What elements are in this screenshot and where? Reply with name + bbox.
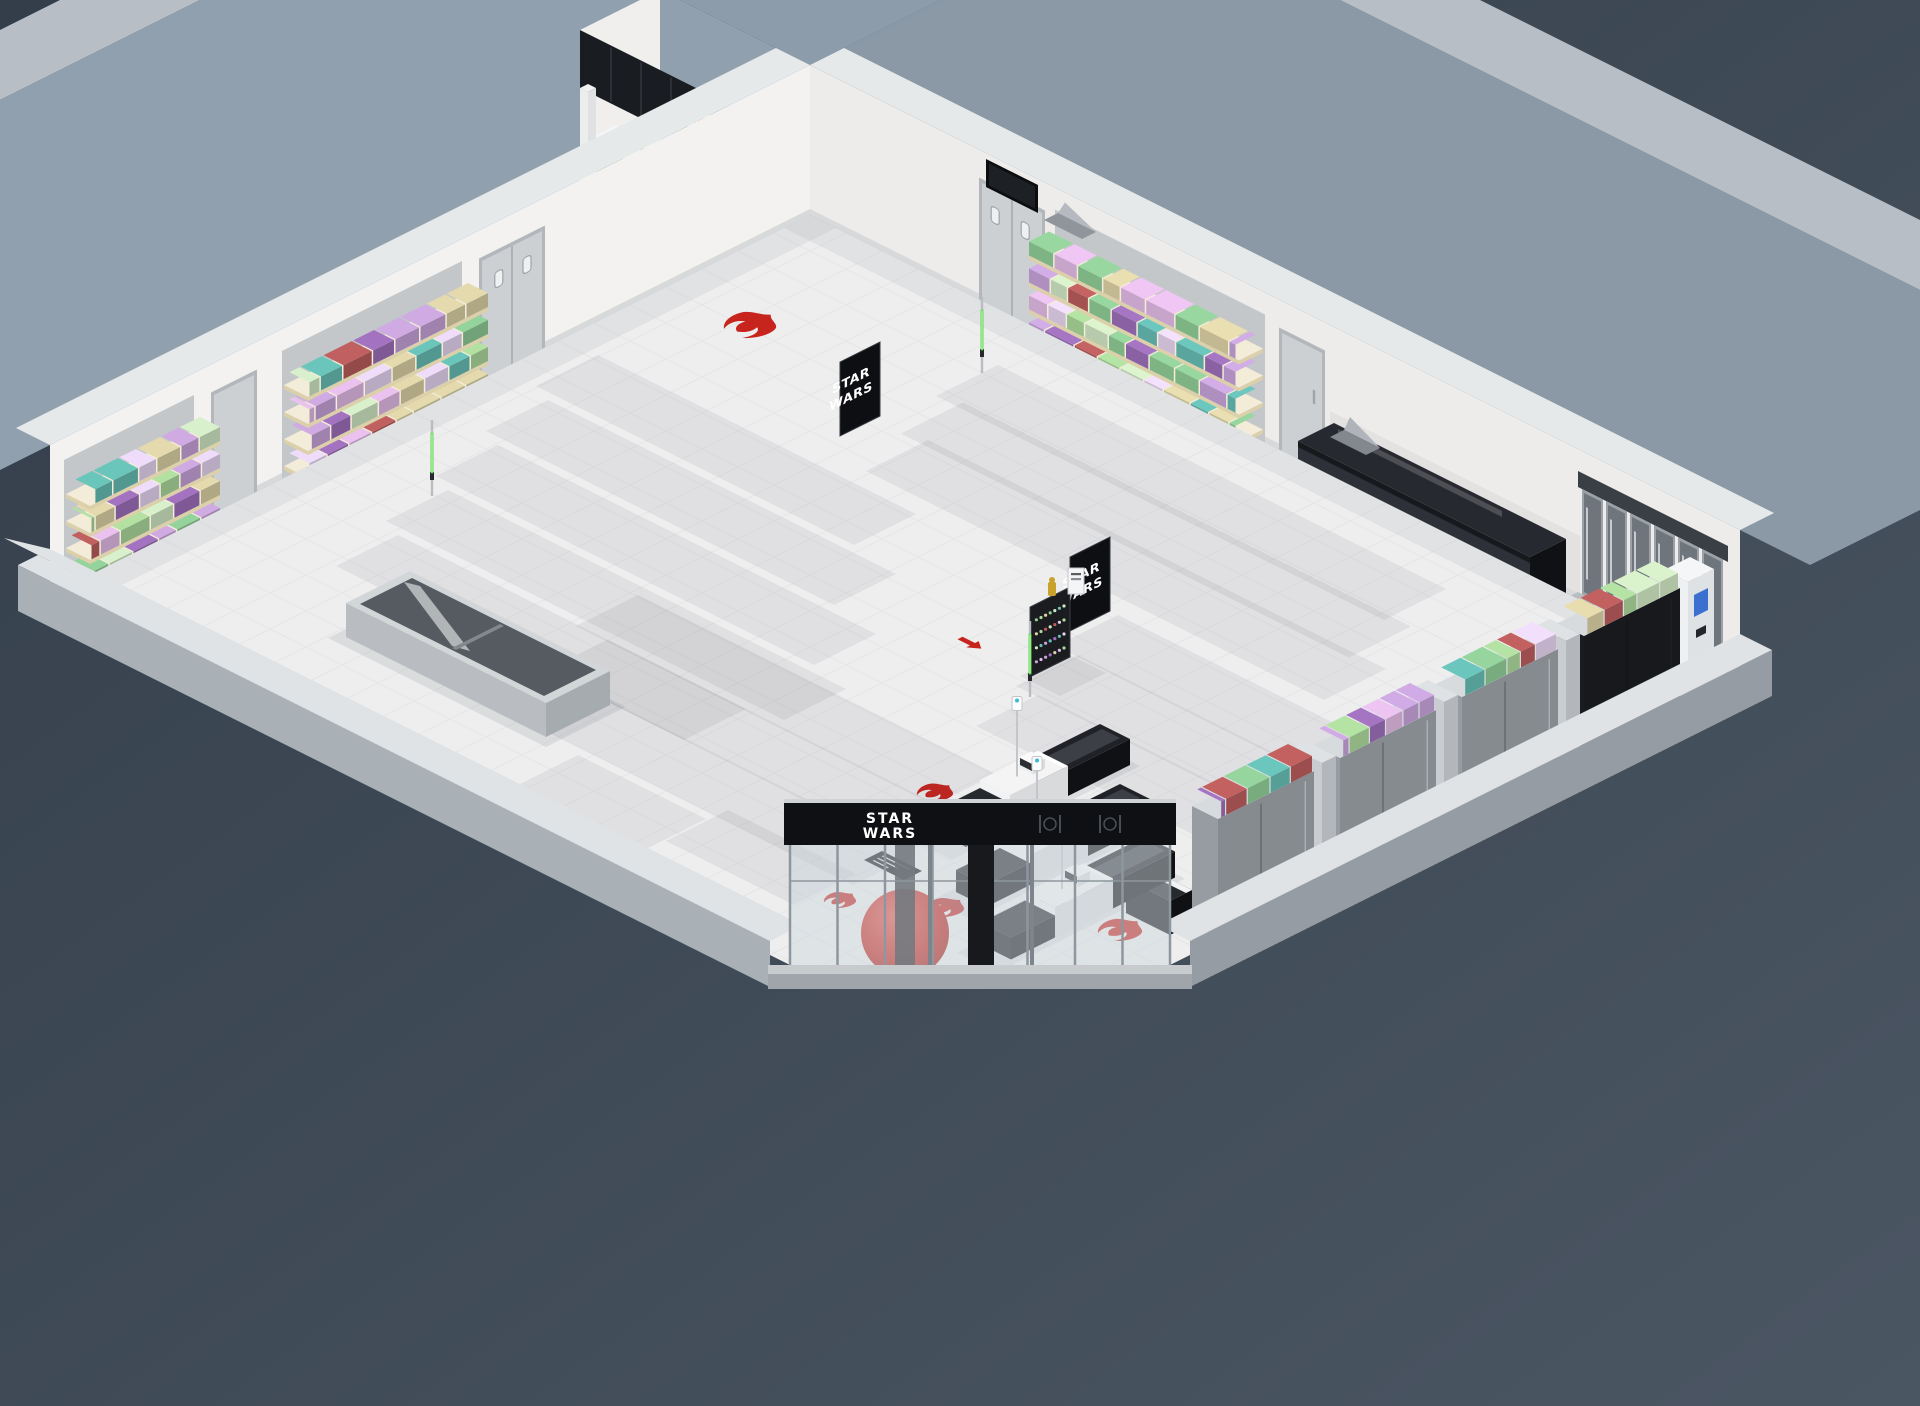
store-isometric-render: STARWARSSTARWARSSTARWARS xyxy=(0,0,1920,1406)
entrance-wordmark-line: WARS xyxy=(863,826,918,842)
event-sign xyxy=(1068,568,1084,594)
star-wars-entrance-banner: STARWARS xyxy=(784,799,1176,845)
entrance-facade: STARWARS xyxy=(768,799,1192,989)
scene-canvas: STARWARSSTARWARSSTARWARS xyxy=(0,0,1920,1406)
entrance-wordmark-line: STAR xyxy=(866,811,914,827)
